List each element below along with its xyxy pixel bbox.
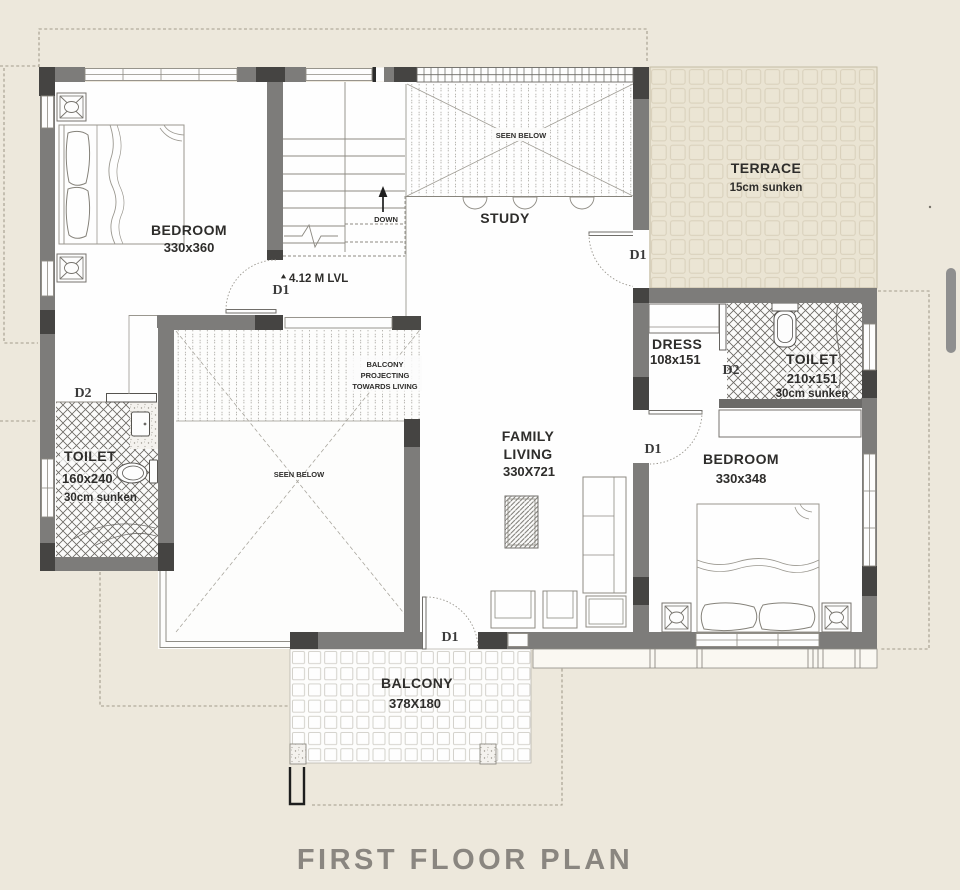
svg-text:BALCONY: BALCONY bbox=[366, 360, 403, 369]
svg-text:BALCONY: BALCONY bbox=[381, 675, 453, 691]
svg-text:LIVING: LIVING bbox=[503, 446, 552, 462]
svg-text:PROJECTING: PROJECTING bbox=[361, 371, 410, 380]
svg-text:FAMILY: FAMILY bbox=[502, 428, 555, 444]
svg-text:TOWARDS LIVING: TOWARDS LIVING bbox=[352, 382, 417, 391]
svg-text:160x240: 160x240 bbox=[62, 471, 113, 486]
svg-text:D1: D1 bbox=[629, 248, 646, 263]
svg-text:STUDY: STUDY bbox=[480, 210, 530, 226]
svg-text:DOWN: DOWN bbox=[374, 215, 398, 224]
svg-text:D2: D2 bbox=[74, 386, 91, 401]
svg-text:BEDROOM: BEDROOM bbox=[703, 451, 779, 467]
svg-text:15cm sunken: 15cm sunken bbox=[730, 182, 803, 194]
svg-text:330x360: 330x360 bbox=[164, 240, 215, 255]
svg-text:SEEN BELOW: SEEN BELOW bbox=[274, 470, 325, 479]
svg-text:330x348: 330x348 bbox=[716, 471, 767, 486]
svg-text:330X721: 330X721 bbox=[503, 464, 555, 479]
svg-text:TOILET: TOILET bbox=[786, 351, 838, 367]
svg-text:D1: D1 bbox=[644, 442, 661, 457]
svg-text:TERRACE: TERRACE bbox=[731, 160, 801, 176]
svg-text:4.12 M LVL: 4.12 M LVL bbox=[289, 273, 348, 285]
svg-text:210x151: 210x151 bbox=[787, 371, 838, 386]
svg-text:BEDROOM: BEDROOM bbox=[151, 222, 227, 238]
svg-text:30cm sunken: 30cm sunken bbox=[64, 492, 137, 504]
svg-text:SEEN BELOW: SEEN BELOW bbox=[496, 131, 547, 140]
svg-text:378X180: 378X180 bbox=[389, 696, 441, 711]
svg-text:D1: D1 bbox=[272, 283, 289, 298]
svg-text:FIRST FLOOR PLAN: FIRST FLOOR PLAN bbox=[297, 844, 633, 876]
svg-text:108x151: 108x151 bbox=[650, 352, 701, 367]
svg-text:DRESS: DRESS bbox=[652, 336, 702, 352]
svg-text:30cm sunken: 30cm sunken bbox=[776, 388, 849, 400]
svg-text:TOILET: TOILET bbox=[64, 448, 116, 464]
svg-text:D2: D2 bbox=[722, 363, 739, 378]
svg-text:D1: D1 bbox=[441, 630, 458, 645]
